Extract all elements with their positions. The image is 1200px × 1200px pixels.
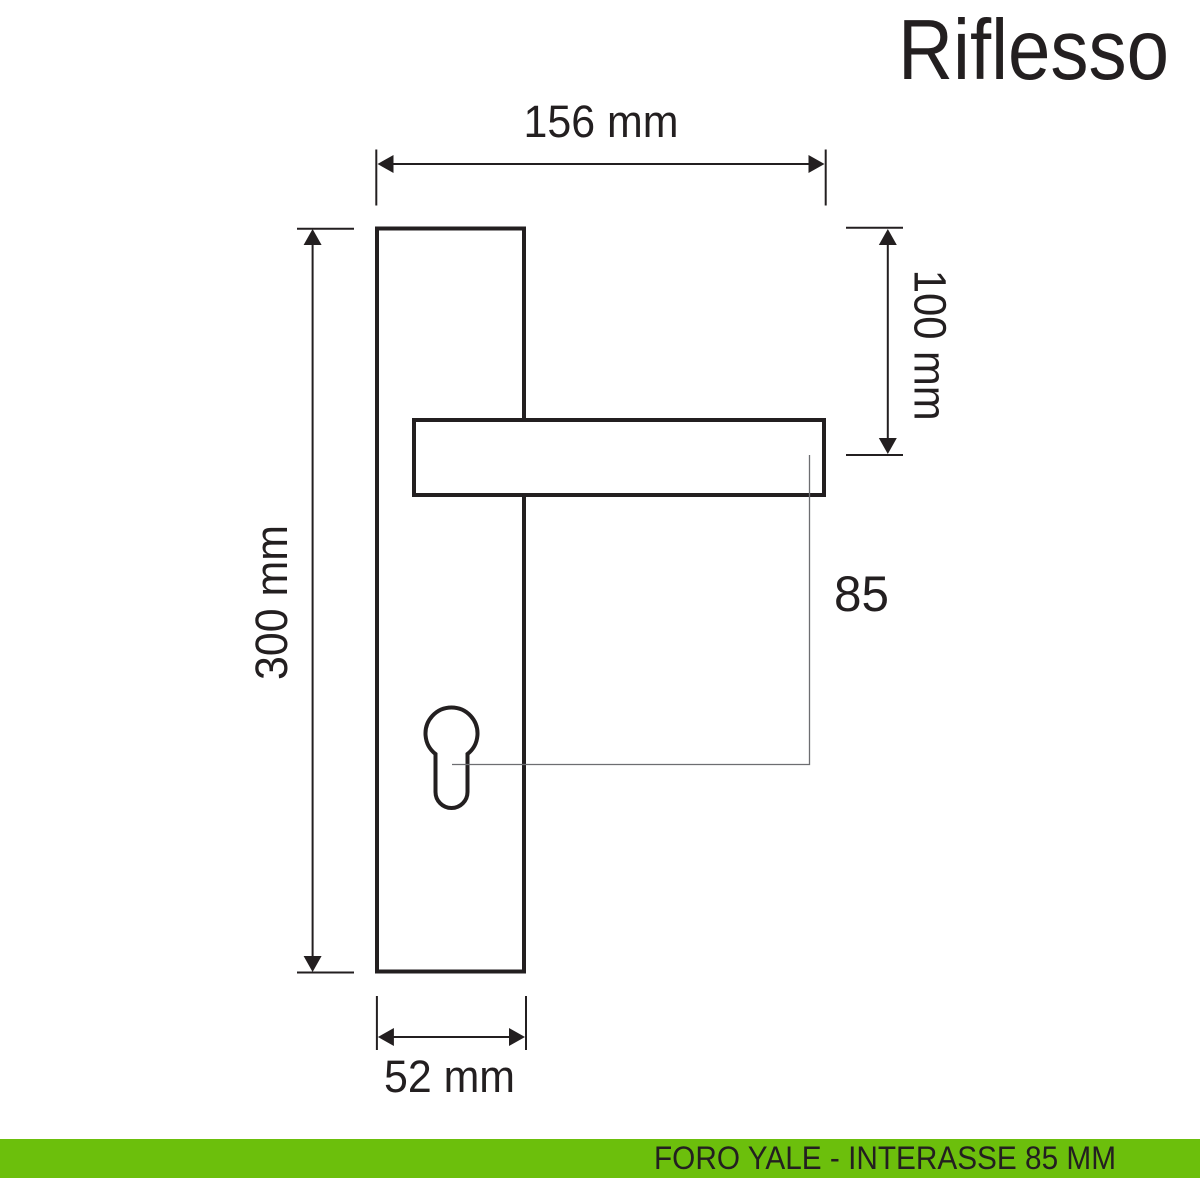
svg-text:Riflesso: Riflesso xyxy=(898,3,1169,98)
svg-text:100 mm: 100 mm xyxy=(905,270,956,421)
svg-text:FORO YALE - INTERASSE 85 MM: FORO YALE - INTERASSE 85 MM xyxy=(654,1140,1116,1176)
svg-text:156 mm: 156 mm xyxy=(524,96,679,147)
svg-text:52 mm: 52 mm xyxy=(384,1051,515,1102)
svg-text:300 mm: 300 mm xyxy=(246,525,297,680)
svg-text:85: 85 xyxy=(834,566,889,622)
